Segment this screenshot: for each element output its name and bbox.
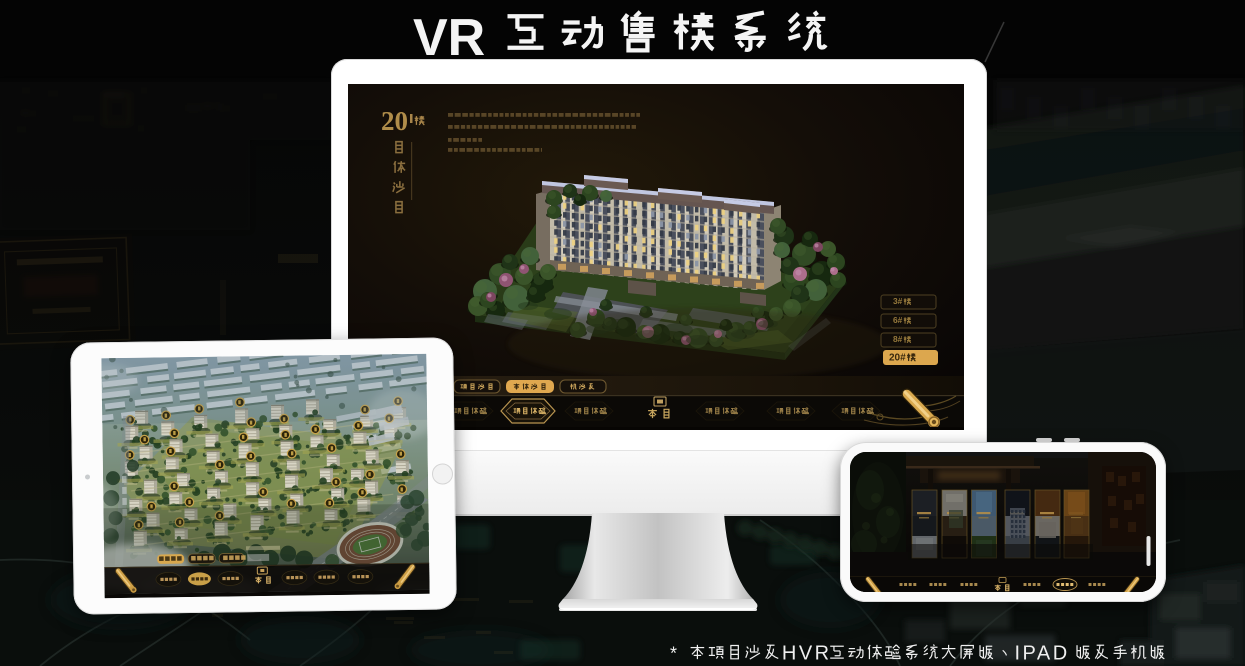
svg-text:8#: 8# — [893, 334, 903, 344]
svg-text:IPAD: IPAD — [1015, 643, 1070, 665]
svg-text:20#: 20# — [889, 352, 906, 363]
svg-text:3#: 3# — [893, 296, 903, 306]
svg-text:6#: 6# — [893, 315, 903, 325]
svg-text:HVR: HVR — [782, 643, 832, 665]
svg-text:20: 20 — [381, 106, 408, 136]
svg-text:*: * — [670, 644, 680, 664]
